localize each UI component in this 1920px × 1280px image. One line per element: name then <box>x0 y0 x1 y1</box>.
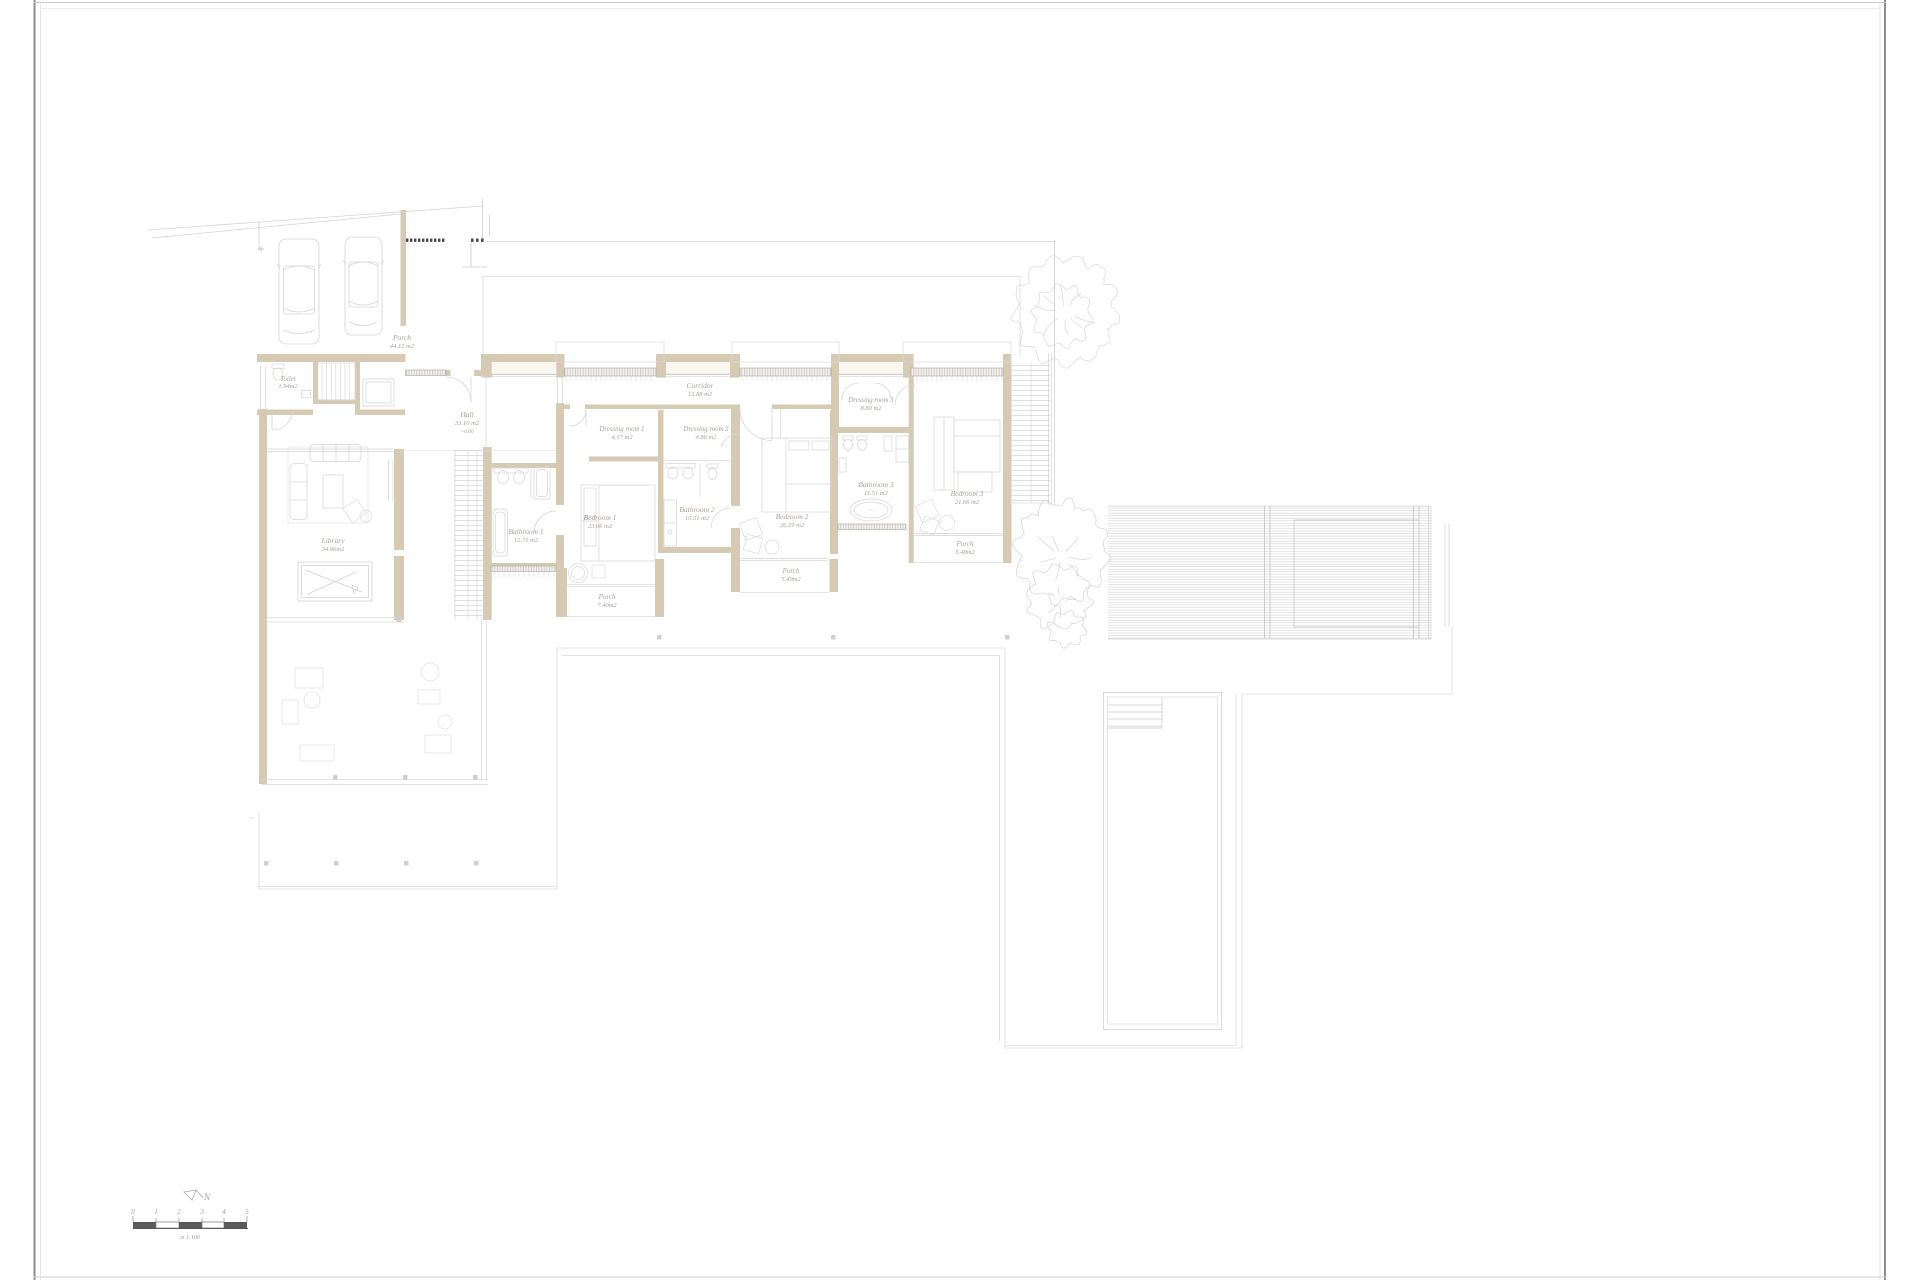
svg-text:Dressing room 2: Dressing room 2 <box>682 426 729 433</box>
svg-text:Toilet: Toilet <box>280 376 296 383</box>
svg-text:1.94m2: 1.94m2 <box>278 383 298 390</box>
svg-text:23.06 m2: 23.06 m2 <box>588 523 613 530</box>
svg-text:0: 0 <box>131 1208 135 1216</box>
svg-text:10.51 m2: 10.51 m2 <box>685 515 710 522</box>
svg-text:44.12 m2: 44.12 m2 <box>390 343 415 350</box>
svg-text:Porch: Porch <box>598 593 616 601</box>
svg-text:26.29 m2: 26.29 m2 <box>780 522 805 529</box>
svg-text:Bedroom 3: Bedroom 3 <box>951 489 984 498</box>
svg-text:4.86 m2: 4.86 m2 <box>696 434 718 441</box>
svg-text:Porch: Porch <box>782 567 800 575</box>
svg-text:13.88 m2: 13.88 m2 <box>688 391 713 398</box>
svg-text:8.80 m2: 8.80 m2 <box>861 405 883 412</box>
svg-text:4.17 m2: 4.17 m2 <box>612 434 634 441</box>
svg-text:4: 4 <box>222 1208 226 1216</box>
svg-text:1: 1 <box>154 1208 158 1216</box>
svg-text:Bedroom 1: Bedroom 1 <box>584 513 617 522</box>
svg-text:5.49m2: 5.49m2 <box>781 576 801 583</box>
svg-text:Bathroom 2: Bathroom 2 <box>679 505 715 514</box>
svg-text:Bathroom 1: Bathroom 1 <box>508 527 543 536</box>
svg-text:7.40m2: 7.40m2 <box>597 602 617 609</box>
svg-text:33.10 m2: 33.10 m2 <box>454 420 480 427</box>
svg-text:5.48m2: 5.48m2 <box>955 549 975 556</box>
svg-text:3: 3 <box>199 1208 204 1216</box>
svg-text:5: 5 <box>245 1208 249 1216</box>
svg-text:11.51 m2: 11.51 m2 <box>864 490 888 497</box>
svg-text:12.71 m2: 12.71 m2 <box>514 537 539 544</box>
svg-text:m 1:100: m 1:100 <box>180 1235 200 1241</box>
svg-text:Bathroom 3: Bathroom 3 <box>858 480 894 489</box>
svg-text:+0.00: +0.00 <box>460 429 474 435</box>
svg-text:Corridor: Corridor <box>686 381 713 390</box>
svg-text:34.96m2: 34.96m2 <box>321 546 345 553</box>
svg-text:Dressing room 3: Dressing room 3 <box>847 397 894 404</box>
svg-text:Hall: Hall <box>459 410 473 419</box>
svg-text:2: 2 <box>177 1208 181 1216</box>
svg-text:Porch: Porch <box>956 540 974 548</box>
svg-text:N: N <box>203 1192 211 1202</box>
svg-text:Bedroom 2: Bedroom 2 <box>776 512 809 521</box>
svg-text:Porch: Porch <box>392 333 411 342</box>
svg-text:Library: Library <box>321 536 346 545</box>
svg-text:Dressing room 1: Dressing room 1 <box>598 426 644 433</box>
svg-text:21.66 m2: 21.66 m2 <box>955 499 980 506</box>
